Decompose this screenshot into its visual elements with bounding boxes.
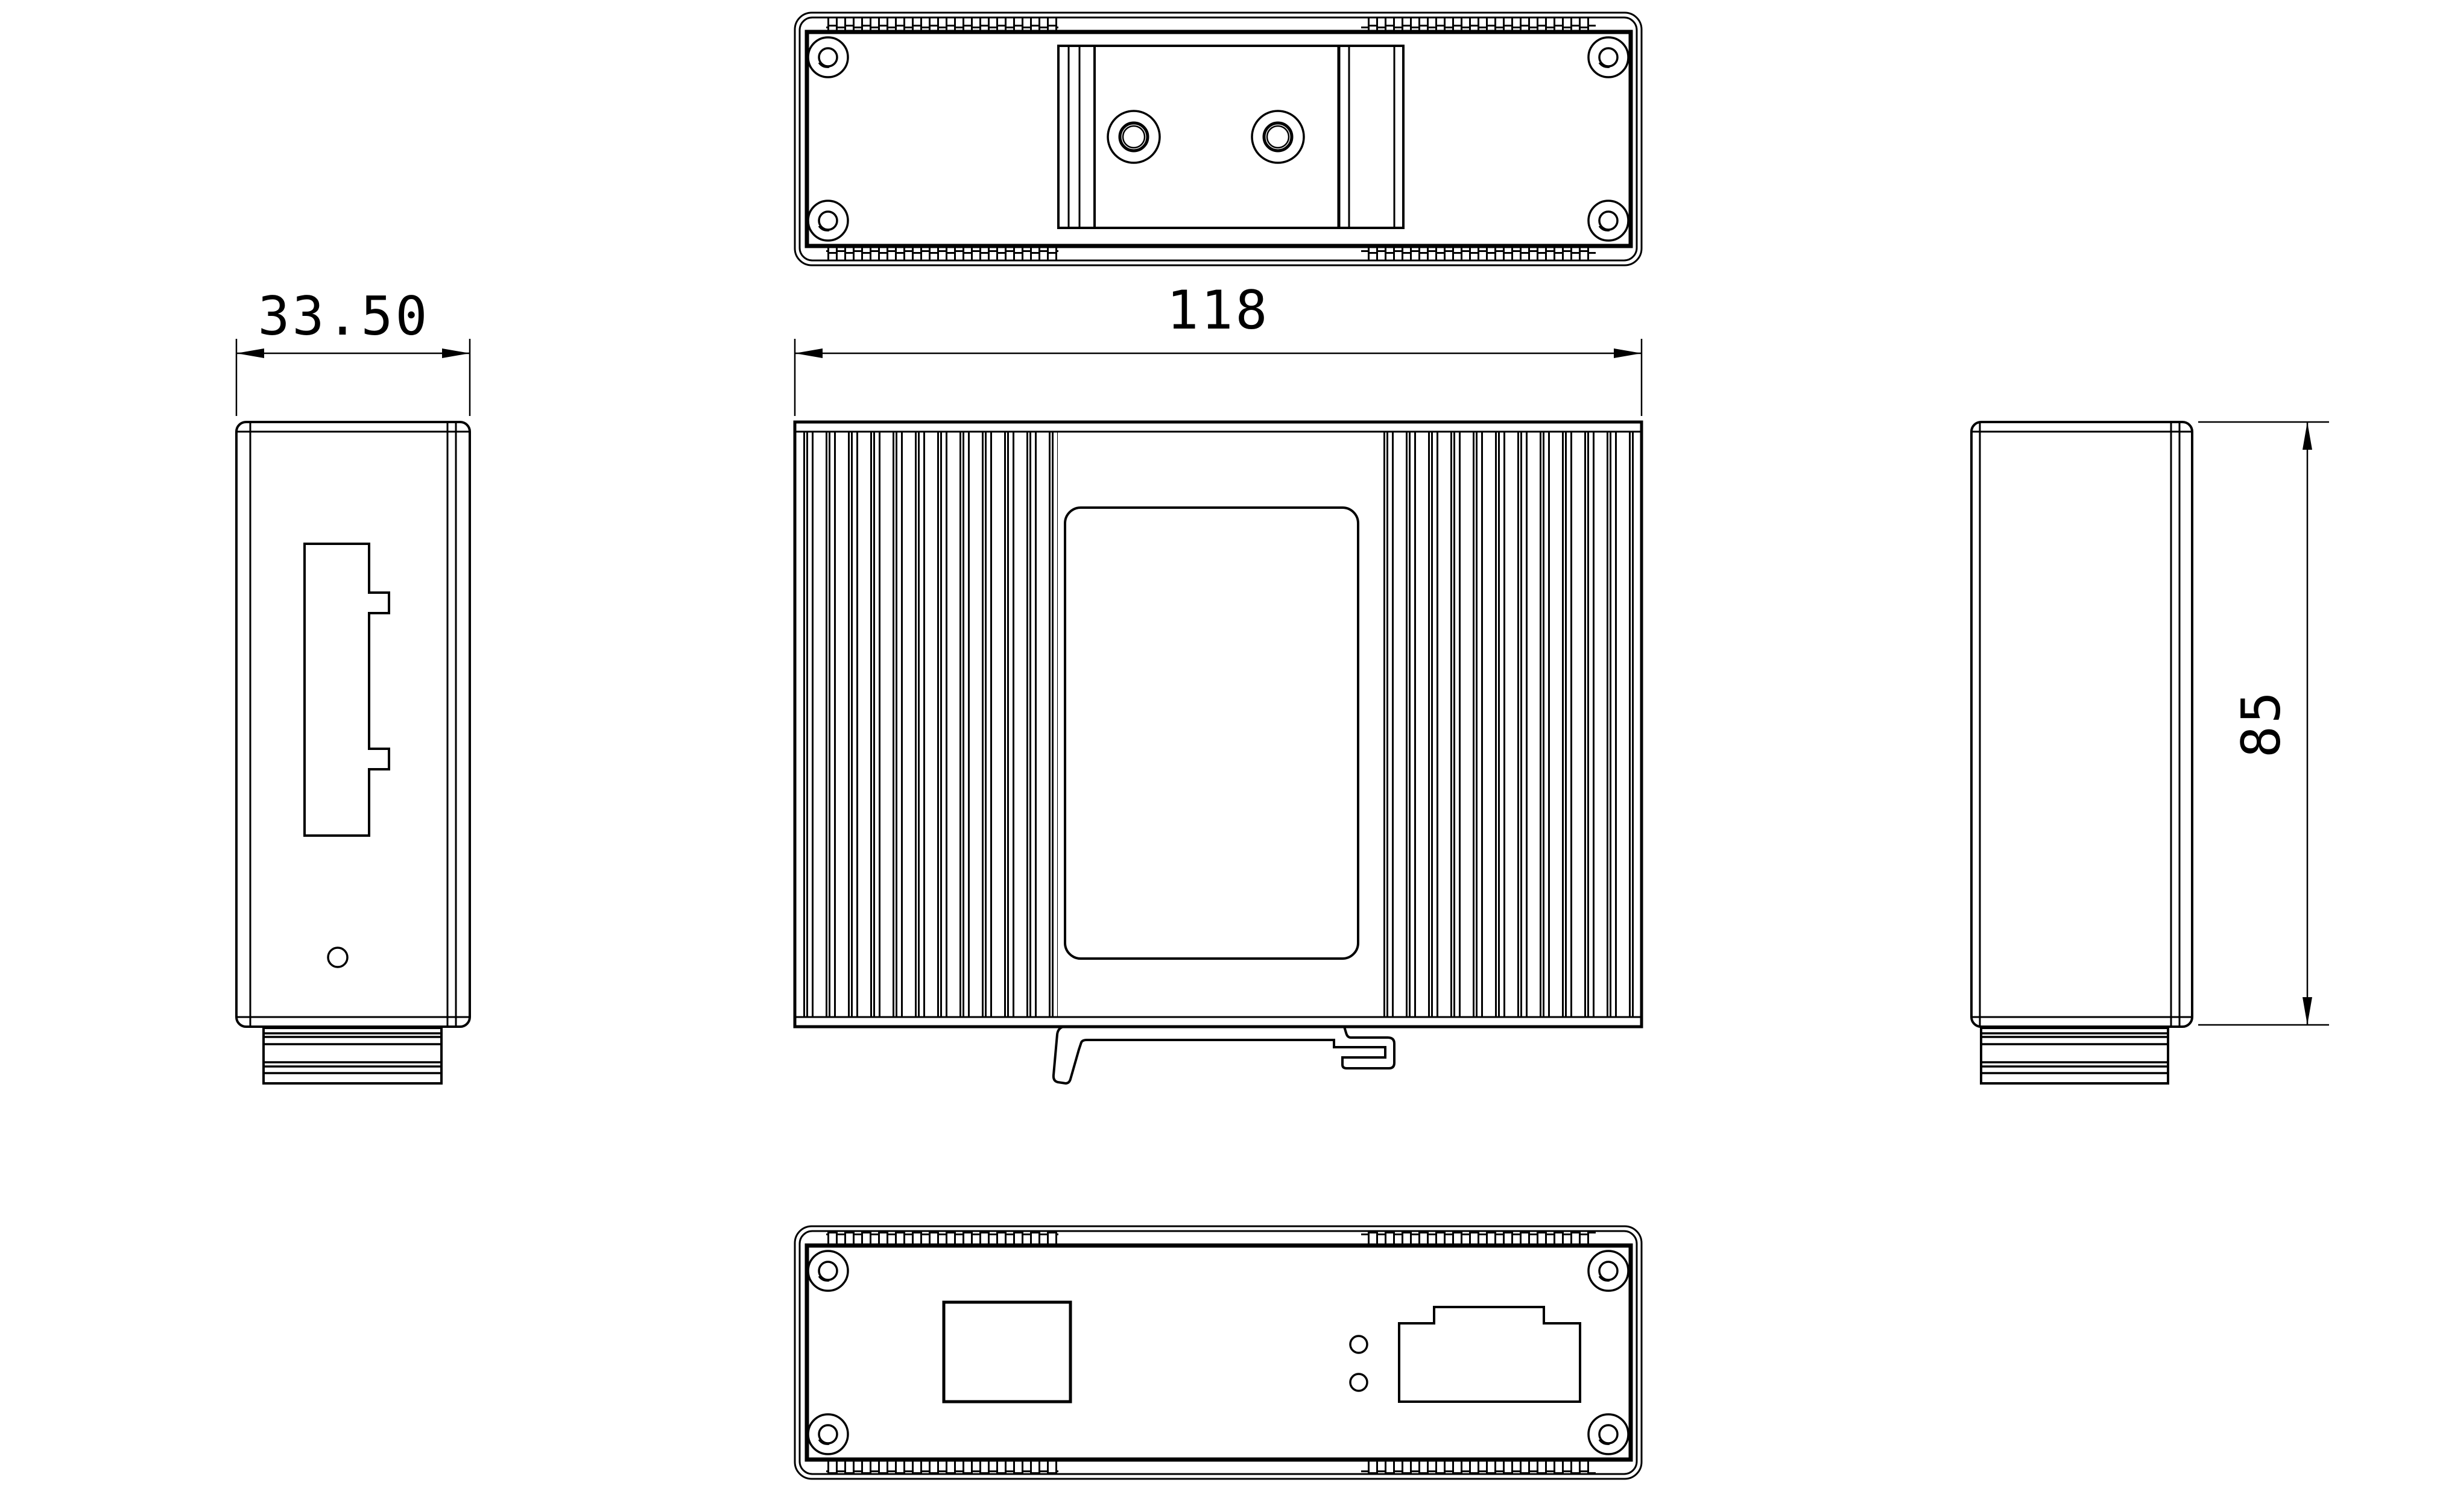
din-clip-profile	[305, 544, 389, 836]
product-label-area	[1065, 508, 1358, 959]
technical-drawing-sheet: 33.50 118 85	[0, 0, 2437, 1512]
led-indicator	[1350, 1374, 1367, 1391]
bottom-terminal-block	[1981, 1028, 2168, 1083]
heatsink-teeth-top-right	[1361, 1230, 1596, 1244]
corner-screw	[808, 37, 848, 77]
plate-screw	[1108, 111, 1160, 163]
body-outline	[807, 1246, 1631, 1460]
arrowhead	[1614, 348, 1642, 358]
power-connector-cutout	[944, 1302, 1070, 1402]
led-indicator	[1350, 1336, 1367, 1353]
dimension-118: 118	[795, 279, 1642, 416]
rim-inner-outline	[800, 1231, 1637, 1474]
orthographic-projection-drawing: 33.50 118 85	[0, 0, 2437, 1512]
dimension-text: 118	[1167, 279, 1270, 341]
din-rail-clip	[1054, 1027, 1394, 1083]
corner-screw	[1588, 201, 1628, 241]
top-view	[795, 13, 1642, 265]
bottom-view	[795, 1226, 1642, 1479]
arrowhead	[442, 348, 470, 358]
side-hole	[328, 948, 347, 967]
corner-screw	[1588, 37, 1628, 77]
heatsink-teeth-top-left	[826, 1230, 1058, 1244]
heatsink-teeth-bottom-left	[826, 248, 1058, 261]
heatsink-teeth-bottom-right	[1361, 1461, 1596, 1475]
front-view	[795, 422, 1642, 1083]
dimension-text: 33.50	[258, 285, 430, 347]
heatsink-fins-right	[1379, 432, 1634, 1017]
ethernet-port-cutout	[1399, 1307, 1580, 1402]
arrowhead	[2303, 422, 2312, 450]
heatsink-teeth-bottom-right	[1361, 248, 1596, 261]
enclosure-outline	[1971, 422, 2192, 1027]
corner-screw	[808, 1414, 848, 1454]
arrowhead	[2303, 997, 2312, 1025]
heatsink-fins-left	[802, 432, 1058, 1017]
dimension-text: 85	[2230, 689, 2292, 758]
right-side-view	[1971, 422, 2192, 1083]
heatsink-teeth-top-left	[826, 17, 1058, 30]
rim-inner-outline	[800, 17, 1637, 260]
arrowhead	[236, 348, 264, 358]
corner-screw	[808, 201, 848, 241]
bottom-terminal-block	[264, 1028, 441, 1083]
corner-screw	[1588, 1414, 1628, 1454]
heatsink-teeth-top-right	[1361, 17, 1596, 30]
heatsink-teeth-bottom-left	[826, 1461, 1058, 1475]
body-outline	[807, 32, 1631, 246]
corner-screw	[808, 1251, 848, 1291]
enclosure-outline	[236, 422, 470, 1027]
plate-screw	[1252, 111, 1304, 163]
arrowhead	[795, 348, 823, 358]
enclosure-outline	[795, 1226, 1642, 1479]
corner-screw	[1588, 1251, 1628, 1291]
dimension-33-50: 33.50	[236, 285, 470, 416]
dimension-85: 85	[2198, 422, 2329, 1025]
left-side-view	[236, 422, 470, 1083]
din-mounting-plate	[1058, 46, 1403, 228]
